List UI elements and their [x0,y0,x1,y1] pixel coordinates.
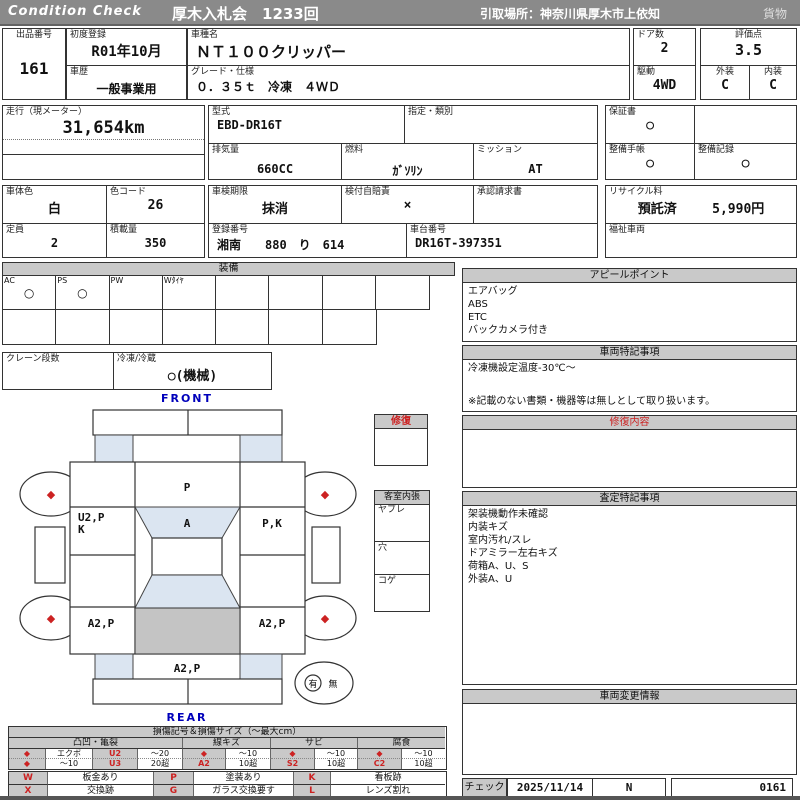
rear-window [135,575,240,608]
odometer-label: 走行（現メーター） [3,106,204,118]
warranty-label: 保証書 [606,106,694,118]
check-date-cell: 2025/11/14 N [507,778,666,797]
warranty-value: ○ [606,118,694,133]
equipment-row1: AC○ PS○ PW Wﾀｲﾔ [2,275,430,310]
vehicle-notes-title: 車両特記事項 [463,346,796,360]
equipment-header: 装備 [2,262,455,276]
repair-content-box: 修復内容 [462,415,797,488]
legend-cell: 20超 [138,759,183,769]
legend-code-p-desc: 塗装あり [194,772,294,785]
vehicle-damage-diagram: FRONT P A U2,P K P,K A2,P A2,P A2,P ◆ ◆ … [0,390,370,730]
recycle-welfare-cell: リサイクル料 預託済 5,990円 福祉車両 [605,185,797,258]
recycle-fee: 5,990円 [712,198,764,217]
cargo-bed [135,608,240,654]
mark-left-front-2: K [78,523,85,536]
legend-cell: ◆ [271,749,315,759]
repair-code-legend-table: W 板金あり P 塗装あり K 看板跡 X 交換跡 G ガラス交換要す L レン… [8,771,447,799]
legend-cell: 10超 [315,759,358,769]
equipment-cell-6 [269,276,322,309]
equipment-cell-8 [376,276,429,309]
legend-group-dent: 凸凹・亀裂 [9,738,183,749]
equipment-cell-7 [323,276,376,309]
legend-group-corrosion: 腐食 [358,738,445,749]
legend-code-p: P [154,772,194,785]
inspection-value: 抹消 [209,198,341,217]
brand-logo: Condition Check [8,4,142,19]
reefer-value: ○(機械) [114,365,271,384]
doors-label: ドア数 [634,29,695,41]
type-class-label: 指定・類別 [405,106,597,118]
maintenance-book-label: 整備手帳 [606,144,694,156]
chassis-value: DR16T-397351 [407,236,597,250]
registration-history-cell: 初度登録 R01年10月 車歴 一般事業用 [66,28,187,100]
model-code-value: EBD-DR16T [209,118,404,132]
mark-hood: P [184,481,191,494]
legend-code-k: K [294,772,331,785]
fuel-value: ｶﾞｿﾘﾝ [342,162,473,179]
legend-cell: ◆ [358,749,402,759]
legend-cell: S2 [271,759,315,769]
legend-group-rust: サビ [271,738,358,749]
crane-label: クレーン段数 [3,353,113,365]
interior-grade-value: C [750,78,796,93]
fuel-label: 燃料 [342,144,473,156]
exterior-grade-label: 外装 [701,66,749,78]
legend-cell: U2 [93,749,138,759]
legend-cell: ～10 [226,749,271,759]
repair-flag-title: 修復 [375,415,427,429]
body-color-value: 白 [3,198,106,217]
color-code-label: 色コード [107,186,204,198]
check-date: 2025/11/14 [508,779,592,796]
score-value: 3.5 [701,41,796,59]
assessment-notes-body: 架装機動作未確認 内装キズ 室内汚れ/スレ ドアミラー左右キズ 荷箱A、U、S … [463,506,796,588]
check-label: チェック [463,779,506,796]
repair-content-title: 修復内容 [463,416,796,430]
exterior-grade-value: C [701,78,749,93]
legend-cell: C2 [358,759,402,769]
legend-cell: 10超 [402,759,445,769]
history-label2: 車歴 [67,66,91,78]
check-number-cell: 0161 [671,778,793,797]
capacity-value: 2 [3,236,106,250]
equipment-title: 装備 [3,263,454,275]
check-number: 0161 [672,779,792,796]
displacement-value: 660CC [209,162,341,176]
first-registration-label: 初度登録 [67,29,186,41]
transmission-label: ミッション [474,144,597,156]
equipment-cell-ps: PS○ [56,276,109,309]
recycle-label: リサイクル料 [606,186,796,198]
damage-legend-table: 損傷記号＆損傷サイズ（～最大cm） 凸凹・亀裂 線キズ サビ 腐食 ◆ エクボ … [8,726,447,770]
drive-value: 4WD [634,78,695,93]
side-panel-left [35,527,65,583]
body-color-label: 車体色 [3,186,106,198]
rear-label: REAR [167,711,208,724]
vehicle-changes-title: 車両変更情報 [463,690,796,704]
odometer-value: 31,654km [3,118,204,138]
front-pillar-right [240,435,282,462]
bottom-border-bar [0,796,800,800]
documents-empty-cell [694,106,796,143]
front-label: FRONT [161,392,213,405]
pickup-location: 引取場所：神奈川県厚木市上依知 [480,5,660,22]
repair-flag-box: 修復 [374,414,428,466]
check-inspector: N [593,779,665,796]
legend-group-scratch: 線キズ [183,738,271,749]
model-grade-cell: 車種名 ＮＴ１００クリッパー グレード・仕様 ０．３５ｔ 冷凍 ４ＷＤ [187,28,630,100]
assessment-notes-box: 査定特記事項 架装機動作未確認 内装キズ 室内汚れ/スレ ドアミラー左右キズ 荷… [462,491,797,685]
mark-rear-gate: A2,P [174,662,201,675]
vehicle-changes-body [463,704,796,708]
cab-roof [152,538,222,575]
model-name-value: ＮＴ１００クリッパー [188,41,629,62]
legend-cell: 10超 [226,759,271,769]
mark-right-front: P,K [262,517,282,530]
load-capacity-value: 350 [107,236,204,250]
top-banner: Condition Check 厚木入札会 1233回 引取場所：神奈川県厚木市… [0,0,800,26]
doors-drive-cell: ドア数 2 駆動 4WD [633,28,696,100]
vehicle-notes-body: 冷凍機設定温度-30℃～ [463,360,796,377]
legend-code-w-desc: 板金あり [48,772,154,785]
appeal-points-box: アピールポイント エアバッグ ABS ETC バックカメラ付き [462,268,797,342]
capacity-label: 定員 [3,224,106,236]
interior-row-hole: 穴 [375,542,429,554]
wheel-mark-rr: ◆ [321,612,330,625]
plate-label: 登録番号 [209,224,406,236]
front-pillar-left [95,435,133,462]
vehicle-notes-box: 車両特記事項 冷凍機設定温度-30℃～ ※記載のない書類・機器等は無しとして取り… [462,345,797,412]
engine-cell: 型式 EBD-DR16T 指定・類別 排気量 660CC 燃料 ｶﾞｿﾘﾝ ミッ… [208,105,598,180]
model-name-label: 車種名 [188,29,629,41]
insurance-label: 検付自賠責 [342,186,473,198]
legend-cell: ～20 [138,749,183,759]
auction-title: 厚木入札会 1233回 [172,3,319,24]
mark-left-rear: A2,P [88,617,115,630]
lot-number-cell: 出品番号 161 [2,28,66,100]
mark-windshield: A [184,517,191,530]
maintenance-record-value: ○ [695,156,796,171]
legend-cell: U3 [93,759,138,769]
inspection-plate-cell: 車検期限 抹消 検付自賠責 × 承認請求書 登録番号 湘南 880 り 614 … [208,185,598,258]
assessment-notes-title: 査定特記事項 [463,492,796,506]
wheel-mark-rl: ◆ [47,612,56,625]
reefer-label: 冷凍/冷蔵 [114,353,271,365]
history-value: 一般事業用 [67,80,186,97]
spare-yes-label: 有 [308,678,317,690]
equipment-cell-pw: PW [110,276,163,309]
maintenance-book-value: ○ [606,156,694,171]
odometer-cell: 走行（現メーター） 31,654km [2,105,205,180]
welfare-label: 福祉車両 [606,224,796,236]
crane-reefer-cell: クレーン段数 冷凍/冷蔵 ○(機械) [2,352,272,390]
equipment-cell-ac: AC○ [3,276,56,309]
cabin-interior-title: 客室内張 [375,491,429,505]
equipment-cell-wtire: Wﾀｲﾔ [163,276,216,309]
inspection-label: 車検期限 [209,186,341,198]
score-cell: 評価点 3.5 外装 C 内装 C [700,28,797,100]
drive-label: 駆動 [634,66,695,78]
spare-no-label: 無 [328,678,337,690]
doors-value: 2 [634,41,695,56]
score-label: 評価点 [701,29,796,41]
legend-cell: ～10 [402,749,445,759]
recycle-status: 預託済 [638,198,677,217]
equipment-row2 [2,309,377,345]
legend-title: 損傷記号＆損傷サイズ（～最大cm） [9,727,445,738]
legend-cell: A2 [183,759,226,769]
rear-pillar-left [95,654,133,679]
spare-tire-indicator [295,662,353,704]
vehicle-notes-footer: ※記載のない書類・機器等は無しとして取り扱います。 [463,393,720,410]
legend-cell: ～10 [46,759,93,769]
mark-right-rear: A2,P [259,617,286,630]
model-code-label: 型式 [209,106,404,118]
chassis-label: 車台番号 [407,224,597,236]
vehicle-changes-box: 車両変更情報 [462,689,797,775]
color-code-value: 26 [107,198,204,213]
interior-grade-label: 内装 [750,66,796,78]
legend-cell: エクボ [46,749,93,759]
lot-number-value: 161 [3,59,65,78]
displacement-label: 排気量 [209,144,341,156]
legend-code-w: W [9,772,48,785]
appeal-points-body: エアバッグ ABS ETC バックカメラ付き [463,283,796,339]
load-capacity-label: 積載量 [107,224,204,236]
side-panel-right [312,527,340,583]
wheel-mark-fl: ◆ [47,488,56,501]
color-capacity-cell: 車体色 白 色コード 26 定員 2 積載量 350 [2,185,205,258]
legend-code-k-desc: 看板跡 [331,772,445,785]
lot-number-label: 出品番号 [3,29,65,41]
first-registration-value: R01年10月 [67,41,186,61]
transmission-value: AT [474,162,597,176]
maintenance-record-label: 整備記録 [695,144,796,156]
category-tag: 貨物 [763,5,787,22]
cabin-interior-box: 客室内張 ヤブレ 穴 コゲ [374,490,430,612]
approval-label: 承認請求書 [474,186,597,198]
equipment-cell-5 [216,276,269,309]
plate-value: 湘南 880 り 614 [209,236,406,253]
grade-value: ０．３５ｔ 冷凍 ４ＷＤ [188,78,629,95]
interior-row-burn: コゲ [375,575,429,587]
legend-cell: ◆ [9,759,46,769]
appeal-points-title: アピールポイント [463,269,796,283]
wheel-mark-fr: ◆ [321,488,330,501]
legend-cell: ～10 [315,749,358,759]
check-label-cell: チェック [462,778,507,797]
documents-cell: 保証書 ○ 整備手帳 ○ 整備記録 ○ [605,105,797,180]
repair-content-body [463,430,796,434]
rear-pillar-right [240,654,282,679]
legend-cell: ◆ [183,749,226,759]
insurance-value: × [342,198,473,213]
grade-label: グレード・仕様 [188,66,629,78]
legend-cell: ◆ [9,749,46,759]
interior-row-tear: ヤブレ [375,504,429,516]
